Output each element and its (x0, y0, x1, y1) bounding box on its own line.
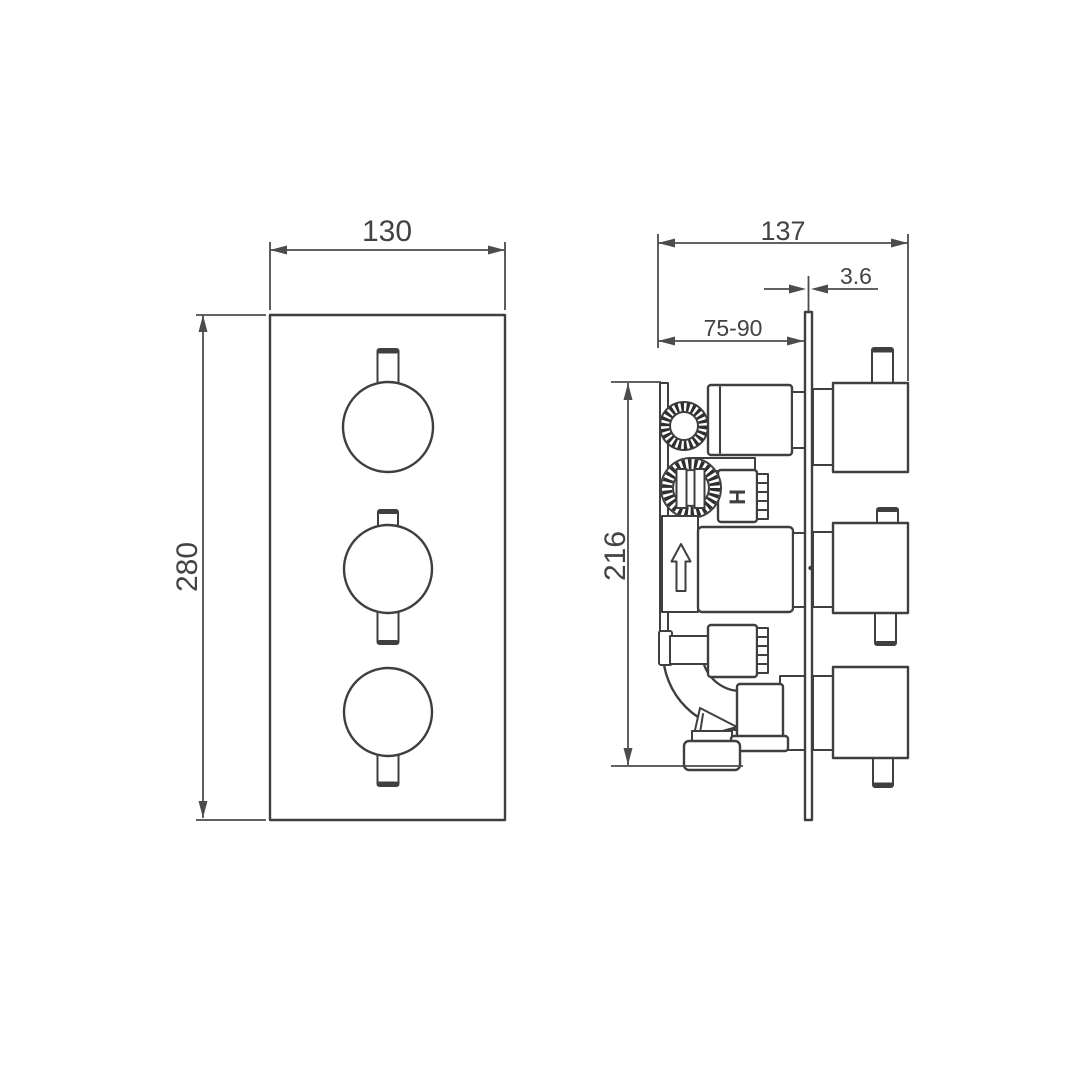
arrowhead (624, 383, 633, 400)
knob-circle (344, 668, 432, 756)
dim-label-width: 130 (362, 215, 412, 248)
knob-circle (344, 525, 432, 613)
valve-block-middle (698, 527, 793, 612)
port-connector (670, 636, 710, 664)
knurled-nut-bore (670, 412, 698, 440)
knob-block (833, 523, 908, 613)
side-view: H (599, 216, 908, 820)
side-knob-top (813, 348, 908, 472)
knob-collar (813, 532, 833, 607)
side-knob-middle (813, 508, 908, 645)
knob-collar (813, 389, 833, 465)
knob-stem (378, 610, 399, 644)
extension-lines (196, 315, 266, 820)
arrowhead (891, 239, 908, 248)
extension-lines (270, 242, 505, 310)
lower-cartridge-section (708, 625, 768, 677)
arrowhead (658, 239, 675, 248)
extension-lines (658, 234, 908, 381)
technical-drawing: 130 280 (0, 0, 1080, 1080)
ribbed-edge (757, 474, 768, 519)
dim-side-depth: 137 (658, 216, 908, 381)
knob-stem (378, 753, 399, 786)
valve-block-lower (708, 625, 757, 677)
arrowhead (658, 337, 675, 346)
drawing-canvas: 130 280 (0, 0, 1080, 1080)
arrowhead (624, 748, 633, 765)
rib-lines (757, 628, 768, 673)
thermostat-section: H (661, 458, 768, 522)
knob-block (833, 383, 908, 472)
dim-recess-depth: 75-90 (658, 315, 804, 346)
side-knob-bottom (813, 667, 908, 787)
dim-label-height: 280 (171, 542, 204, 592)
knob-circle (343, 382, 433, 472)
valve-top-section (660, 385, 805, 455)
dim-front-width: 130 (270, 215, 505, 310)
valve-neck (793, 533, 805, 607)
mixer-body-section (662, 516, 805, 612)
knob-block (833, 667, 908, 758)
arrowhead (199, 315, 208, 332)
dim-label-recess-depth: 75-90 (704, 315, 763, 341)
arrowhead (270, 246, 287, 255)
valve-neck (792, 392, 805, 448)
knob-stem (875, 612, 896, 645)
ribbed-edge (757, 628, 768, 673)
outlet-pipe-block (737, 684, 783, 742)
rib-lines (757, 474, 768, 519)
dim-plate-thickness: 3.6 (764, 263, 878, 311)
dim-label-depth: 137 (760, 216, 805, 246)
arrowhead (789, 285, 806, 294)
arrowhead (488, 246, 505, 255)
arrowhead (811, 285, 828, 294)
dim-label-plate-thickness: 3.6 (840, 263, 872, 289)
spindle-slot-bar (677, 469, 687, 508)
knob-collar (813, 676, 833, 750)
dim-front-height: 280 (171, 315, 266, 820)
dim-label-body-height: 216 (599, 531, 632, 581)
spindle-slot-bar (695, 469, 705, 508)
hot-port-marking: H (725, 489, 750, 505)
arrowhead (787, 337, 804, 346)
front-view: 130 280 (171, 215, 505, 820)
arrowhead (199, 801, 208, 818)
knob-stem (872, 348, 893, 385)
knob-stem (378, 349, 399, 385)
